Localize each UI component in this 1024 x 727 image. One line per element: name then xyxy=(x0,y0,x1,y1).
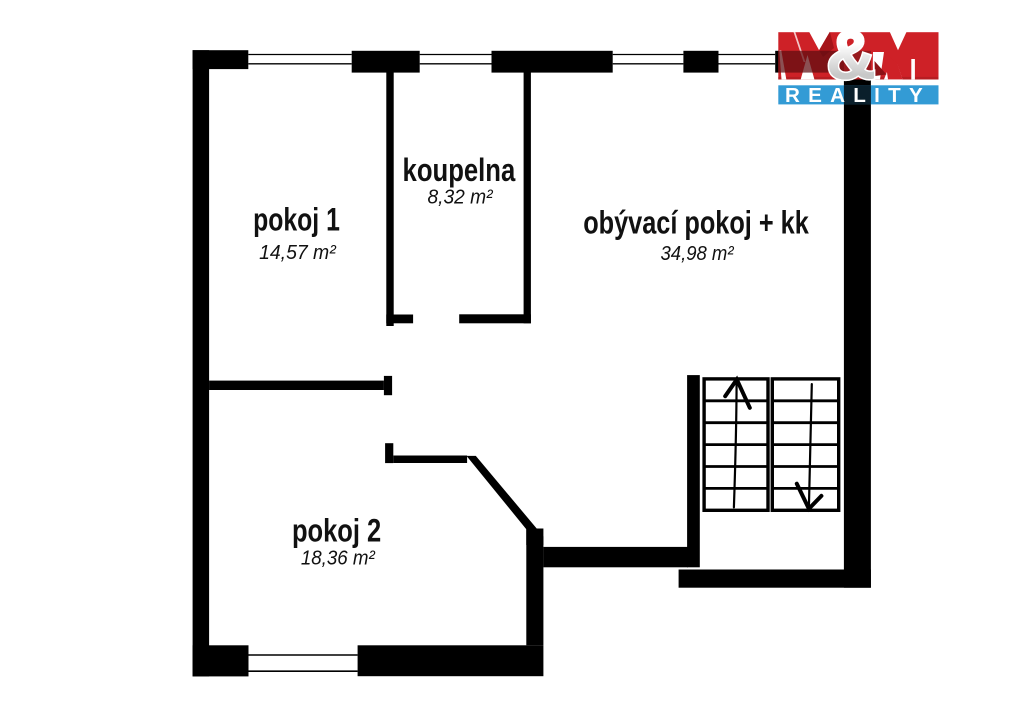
svg-text:koupelna: koupelna xyxy=(403,152,516,188)
svg-text:REALITY: REALITY xyxy=(785,85,931,107)
svg-text:&: & xyxy=(826,17,876,94)
svg-text:14,57 m²: 14,57 m² xyxy=(259,242,337,264)
svg-text:pokoj 2: pokoj 2 xyxy=(292,512,381,548)
svg-text:18,36 m²: 18,36 m² xyxy=(301,548,376,570)
svg-text:8,32 m²: 8,32 m² xyxy=(427,186,493,208)
svg-text:obývací pokoj + kk: obývací pokoj + kk xyxy=(583,204,809,240)
svg-text:34,98 m²: 34,98 m² xyxy=(661,243,735,265)
svg-text:pokoj 1: pokoj 1 xyxy=(253,202,340,238)
